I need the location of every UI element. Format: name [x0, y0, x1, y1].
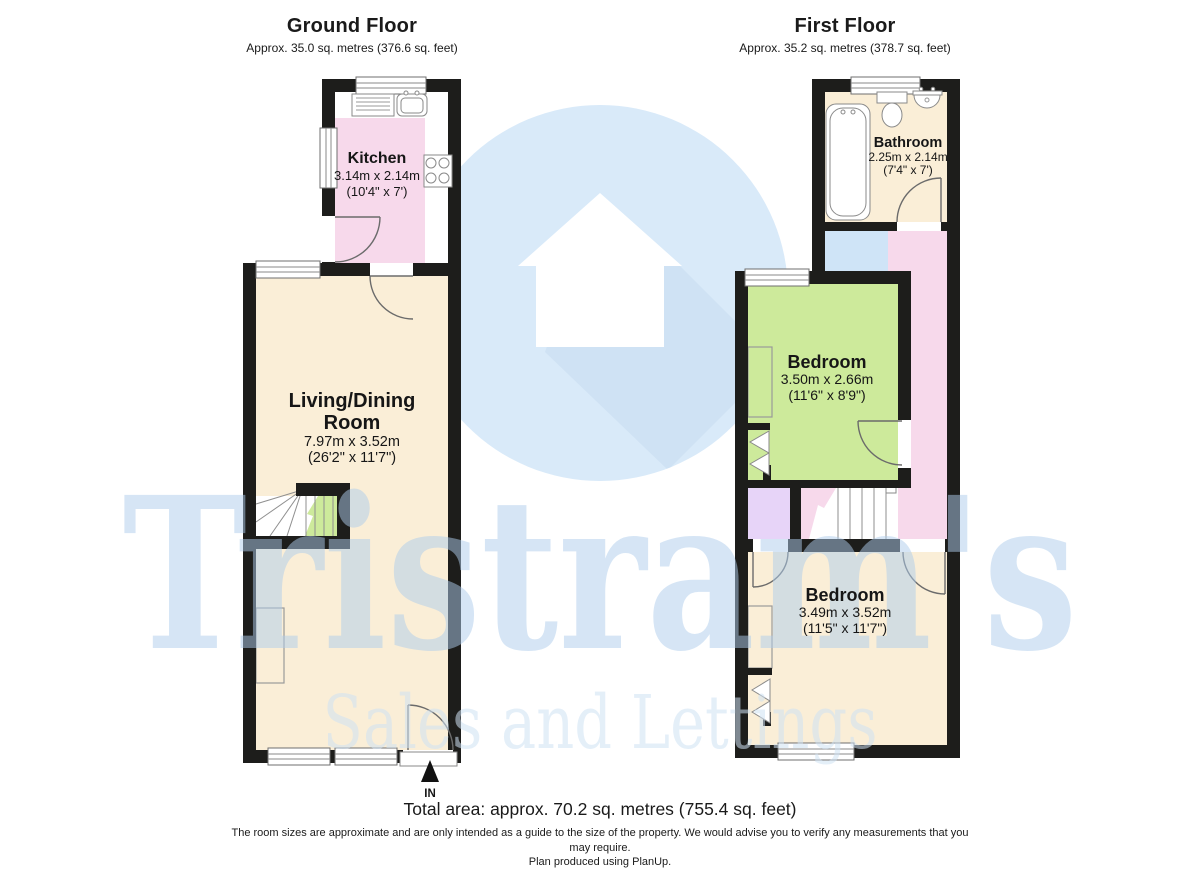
living-dims-m: 7.97m x 3.52m	[304, 434, 400, 450]
disclaimer: The room sizes are approximate and are o…	[150, 826, 1050, 870]
bathtub-icon	[826, 104, 870, 220]
disclaimer-line3: Plan produced using PlanUp.	[150, 855, 1050, 870]
bathroom-door-opening	[897, 222, 941, 231]
bedroom-2-dims-ft: (11'5" x 11'7")	[803, 620, 887, 636]
ground-floor-header: Ground Floor Approx. 35.0 sq. metres (37…	[202, 15, 502, 55]
disclaimer-line1: The room sizes are approximate and are o…	[150, 826, 1050, 841]
first-floor-title: First Floor	[695, 15, 995, 38]
watermark-tagline: Sales and Lettings	[323, 680, 878, 766]
kitchen-label: Kitchen	[348, 150, 407, 167]
floorplan-page: Tristram's Sales and Lettings Kitchen 3.…	[0, 0, 1200, 873]
window	[268, 748, 330, 765]
watermark-house-icon	[412, 105, 788, 481]
living-dims-ft: (26'2" x 11'7")	[308, 450, 396, 466]
kitchen-dims-m: 3.14m x 2.14m	[334, 168, 420, 183]
hob-icon	[424, 155, 452, 187]
total-area: Total area: approx. 70.2 sq. metres (755…	[0, 799, 1200, 820]
bedroom-2-label: Bedroom	[805, 585, 884, 605]
living-label-line1: Living/Dining	[289, 390, 416, 412]
bathroom-dims-ft: (7'4" x 7')	[883, 163, 933, 177]
first-floor-header: First Floor Approx. 35.2 sq. metres (378…	[695, 15, 995, 55]
window	[256, 261, 320, 278]
window	[851, 77, 920, 94]
bedroom-1-dims-ft: (11'6" x 8'9")	[788, 387, 865, 403]
kitchen-dims-ft: (10'4" x 7')	[347, 184, 408, 199]
bedroom-1-label: Bedroom	[787, 352, 866, 372]
window	[745, 269, 809, 286]
airing-cupboard	[825, 230, 888, 271]
floorplan-graphic: Tristram's Sales and Lettings Kitchen 3.…	[0, 0, 1200, 873]
living-label-line2: Room	[324, 412, 381, 434]
watermark-brand: Tristram's	[123, 451, 1078, 698]
ground-floor-area: Approx. 35.0 sq. metres (376.6 sq. feet)	[202, 41, 502, 55]
disclaimer-line2: may require.	[150, 841, 1050, 856]
ground-floor-title: Ground Floor	[202, 15, 502, 38]
kitchen-door-opening	[322, 216, 335, 262]
bathroom-dims-m: 2.25m x 2.14m	[868, 150, 947, 164]
bedroom-2-dims-m: 3.49m x 3.52m	[799, 604, 892, 620]
first-floor-area: Approx. 35.2 sq. metres (378.7 sq. feet)	[695, 41, 995, 55]
bathroom-label: Bathroom	[874, 135, 942, 151]
bedroom-1-dims-m: 3.50m x 2.66m	[781, 371, 874, 387]
sink-icon	[352, 91, 427, 116]
kitchen-living-door-opening	[370, 263, 413, 276]
